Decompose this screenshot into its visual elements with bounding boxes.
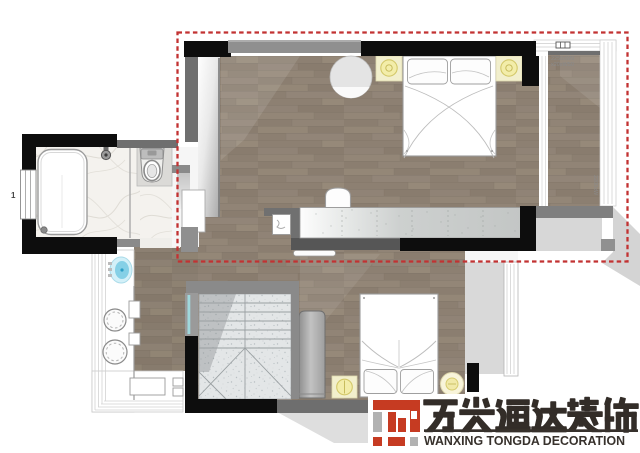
svg-text:x20xW50: x20xW50 <box>551 62 574 68</box>
svg-text:WANXING TONGDA DECORATION: WANXING TONGDA DECORATION <box>424 433 625 448</box>
svg-text:2200xW: 2200xW <box>592 175 598 196</box>
svg-text:1: 1 <box>11 191 16 200</box>
